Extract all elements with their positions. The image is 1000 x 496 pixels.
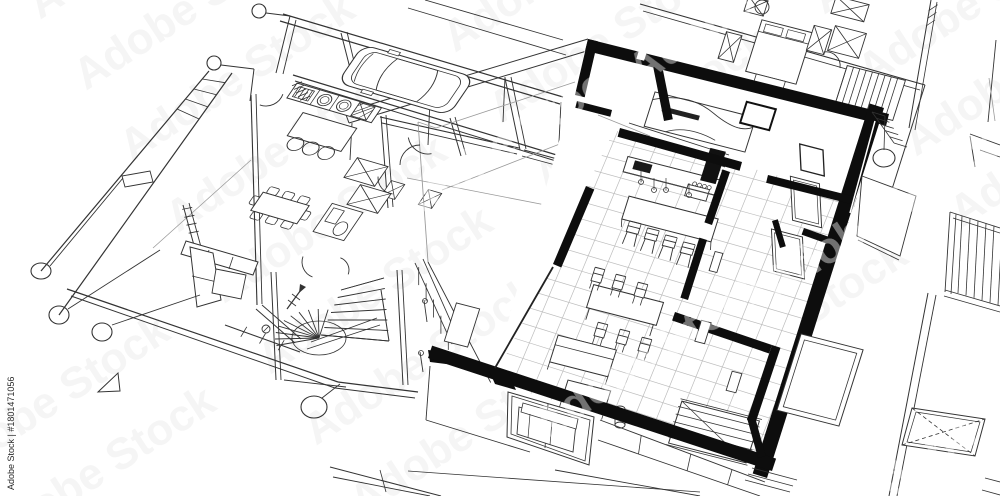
svg-text:Adobe Stock | #1801471056: Adobe Stock | #1801471056 <box>6 377 16 490</box>
